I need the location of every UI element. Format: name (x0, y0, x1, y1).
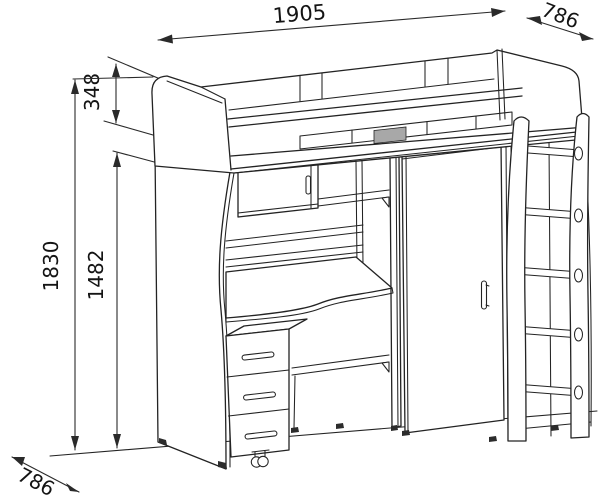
dimension-width: 1905 (158, 0, 505, 44)
technical-drawing-page: 1905 786 348 1830 1482 786 (0, 0, 600, 501)
wardrobe-door (402, 143, 504, 433)
dimension-depth-top: 786 (527, 0, 593, 41)
dimension-depth-bottom-label: 786 (14, 462, 59, 501)
ladder (507, 114, 589, 442)
lower-shelf (292, 355, 389, 428)
dimension-depth-bottom: 786 (12, 457, 79, 501)
center-partition (390, 156, 401, 428)
desk-surface (226, 257, 393, 322)
dimension-overall-height-label: 1830 (39, 241, 63, 292)
dimension-width-label: 1905 (272, 0, 327, 28)
cabinet-handle (306, 176, 311, 194)
dimension-underbed-height: 1482 (84, 151, 158, 448)
dimension-underbed-height-label: 1482 (84, 250, 108, 301)
left-side-panel (155, 150, 234, 469)
ladder-left-rail (507, 117, 529, 441)
upper-shelf (318, 190, 389, 207)
loft-bed-dimension-drawing: 1905 786 348 1830 1482 786 (0, 0, 600, 501)
